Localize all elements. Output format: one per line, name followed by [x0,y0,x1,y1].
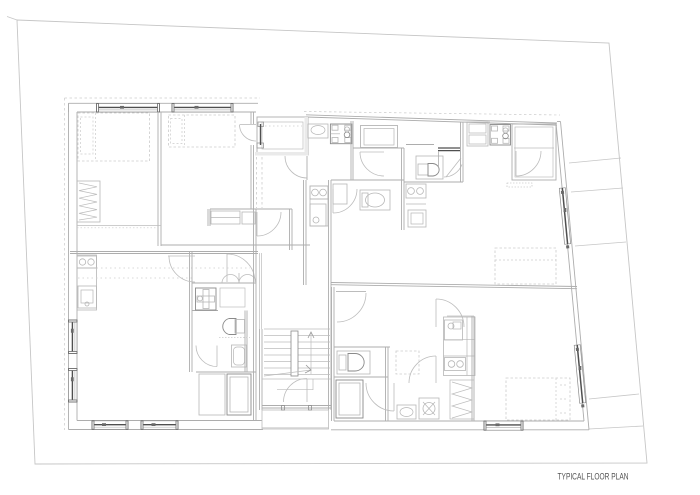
svg-text:TYPICAL FLOOR PLAN: TYPICAL FLOOR PLAN [558,472,629,482]
